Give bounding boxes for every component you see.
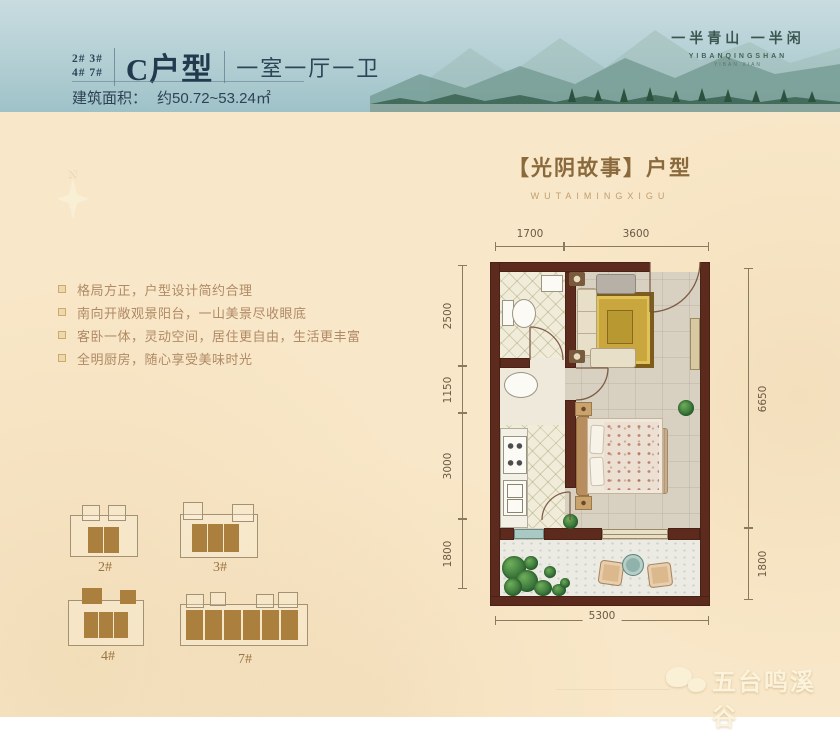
dim-bottom-1: 5300 — [495, 616, 709, 625]
unit-highlight — [192, 524, 207, 552]
header-title-row: 2# 3# 4# 7# C户型 一室一厅一卫 — [72, 44, 380, 89]
unit-highlight — [262, 610, 279, 640]
rug-medallion — [607, 310, 633, 344]
pillow-icon — [589, 457, 604, 487]
brand-name-en: YIBANQINGSHAN — [648, 53, 828, 60]
building-label-7: 7# — [178, 652, 312, 668]
dim-left-4: 1800 — [458, 518, 467, 589]
bed-icon — [587, 418, 663, 494]
building-label-2: 2# — [70, 560, 140, 576]
project-logo-text: 五台鸣溪谷 — [712, 662, 840, 732]
building-numbers-line2: 4# 7# — [72, 67, 103, 81]
bullet-square-icon — [58, 308, 66, 316]
list-item: 客卧一体，灵动空间，居住更自由，生活更丰富 — [58, 328, 398, 342]
compass-star-icon — [51, 176, 95, 222]
header-band: 一半青山 一半闲 YIBANQINGSHAN YIBAN XIAN 2# 3# … — [0, 0, 840, 112]
building-outline — [108, 505, 126, 521]
brand-block: 一半青山 一半闲 YIBANQINGSHAN YIBAN XIAN — [648, 28, 828, 68]
unit-highlight — [224, 524, 239, 552]
list-item: 全明厨房，随心享受美味时光 — [58, 351, 398, 365]
building-diagram-4 — [68, 588, 148, 646]
bullet-square-icon — [58, 331, 66, 339]
balcony-door — [514, 529, 544, 539]
building-numbers-line1: 2# 3# — [72, 53, 103, 67]
building-outline — [186, 594, 204, 608]
plant-icon — [534, 580, 552, 596]
building-numbers: 2# 3# 4# 7# — [72, 53, 103, 81]
bullet-square-icon — [58, 285, 66, 293]
brand-slogan: 一半青山 一半闲 — [648, 28, 828, 48]
chat-bubble-icon — [688, 678, 706, 692]
wall-balcony-rail — [490, 596, 710, 606]
bedroom-window — [602, 529, 668, 539]
loveseat-icon — [590, 348, 636, 368]
dim-top-2: 3600 — [563, 242, 709, 251]
list-item: 南向开敞观景阳台，一山美景尽收眼底 — [58, 305, 398, 319]
section-title: 【光阴故事】户型 — [450, 152, 750, 182]
unit-highlight — [88, 527, 103, 553]
wall-bathroom-bottom — [500, 358, 530, 368]
building-diagram-3 — [180, 502, 260, 557]
unit-highlight — [114, 612, 128, 638]
toilet-bowl-icon — [512, 299, 536, 328]
nightstand-icon — [575, 496, 592, 510]
dim-left-1: 2500 — [458, 265, 467, 367]
building-outline — [82, 505, 100, 521]
plant-icon — [544, 566, 556, 578]
end-table-icon — [569, 272, 585, 286]
dim-left-3: 3000 — [458, 412, 467, 520]
dim-right-1: 6650 — [744, 268, 753, 529]
dim-left-2: 1150 — [458, 365, 467, 414]
balcony-chair-icon — [597, 559, 624, 586]
wall-left — [490, 262, 500, 606]
nightstand-icon — [575, 402, 592, 416]
bullet-square-icon — [58, 354, 66, 362]
header-rule — [72, 81, 304, 82]
plant-icon — [560, 578, 570, 588]
plant-icon — [563, 514, 578, 529]
end-table-icon — [569, 350, 585, 363]
building-diagram-7 — [178, 592, 312, 648]
divider — [224, 51, 225, 83]
washbasin-icon — [504, 372, 538, 398]
balcony-chair-icon — [647, 562, 674, 589]
unit-highlight — [84, 612, 98, 638]
lounge-chair-icon — [596, 274, 636, 294]
unit-highlight — [224, 610, 241, 640]
feature-list: 格局方正，户型设计简约合理 南向开敞观景阳台，一山美景尽收眼底 客卧一体，灵动空… — [58, 282, 398, 374]
footer-rule — [556, 689, 670, 690]
plant-icon — [524, 556, 538, 570]
brand-subname-en: YIBAN XIAN — [648, 62, 828, 68]
unit-highlight — [205, 610, 222, 640]
building-outline — [232, 504, 254, 522]
poster: 一半青山 一半闲 YIBANQINGSHAN YIBAN XIAN 2# 3# … — [0, 0, 840, 717]
list-item: 格局方正，户型设计简约合理 — [58, 282, 398, 296]
building-outline — [256, 594, 274, 608]
sink-basin-icon — [507, 499, 523, 513]
duvet-pattern — [604, 422, 659, 490]
kitchen-sink-icon — [503, 480, 527, 516]
building-outline — [183, 502, 203, 520]
unit-highlight — [243, 610, 260, 640]
section-subtitle: WUTAIMINGXIGU — [450, 191, 750, 201]
dim-top-1: 1700 — [495, 242, 565, 251]
wall-mid-2 — [544, 528, 602, 540]
stove-icon — [503, 436, 527, 474]
unit-highlight — [99, 612, 113, 638]
sink-basin-icon — [507, 484, 523, 498]
wall-mid-3 — [668, 528, 700, 540]
sofa-icon — [577, 288, 597, 356]
building-outline — [210, 592, 226, 606]
layout-description: 一室一厅一卫 — [236, 51, 380, 83]
plant-icon — [504, 578, 522, 596]
wall-top — [490, 262, 650, 272]
balcony-table-icon — [622, 554, 644, 576]
unit-type-title: C户型 — [126, 44, 213, 89]
tv-cabinet-icon — [690, 318, 700, 370]
building-outline — [278, 592, 298, 608]
divider — [114, 48, 115, 86]
unit-highlight — [82, 588, 102, 604]
section-title-block: 【光阴故事】户型 WUTAIMINGXIGU — [450, 152, 750, 201]
building-label-3: 3# — [180, 560, 260, 576]
wall-right — [700, 262, 710, 606]
area-row: 建筑面积：约50.72~53.24㎡ — [72, 87, 271, 108]
unit-highlight — [104, 527, 119, 553]
unit-highlight — [281, 610, 298, 640]
unit-highlight — [186, 610, 203, 640]
plant-icon — [678, 400, 694, 416]
wall-mid-1 — [500, 528, 514, 540]
pillow-icon — [589, 425, 604, 455]
building-label-4: 4# — [68, 649, 148, 665]
dim-right-2: 1800 — [744, 527, 753, 600]
building-diagram-2 — [70, 505, 140, 557]
bath-cabinet-icon — [541, 275, 563, 292]
area-value: 约50.72~53.24㎡ — [157, 90, 271, 107]
unit-highlight — [208, 524, 223, 552]
unit-highlight — [120, 590, 136, 604]
area-label: 建筑面积： — [72, 90, 147, 107]
